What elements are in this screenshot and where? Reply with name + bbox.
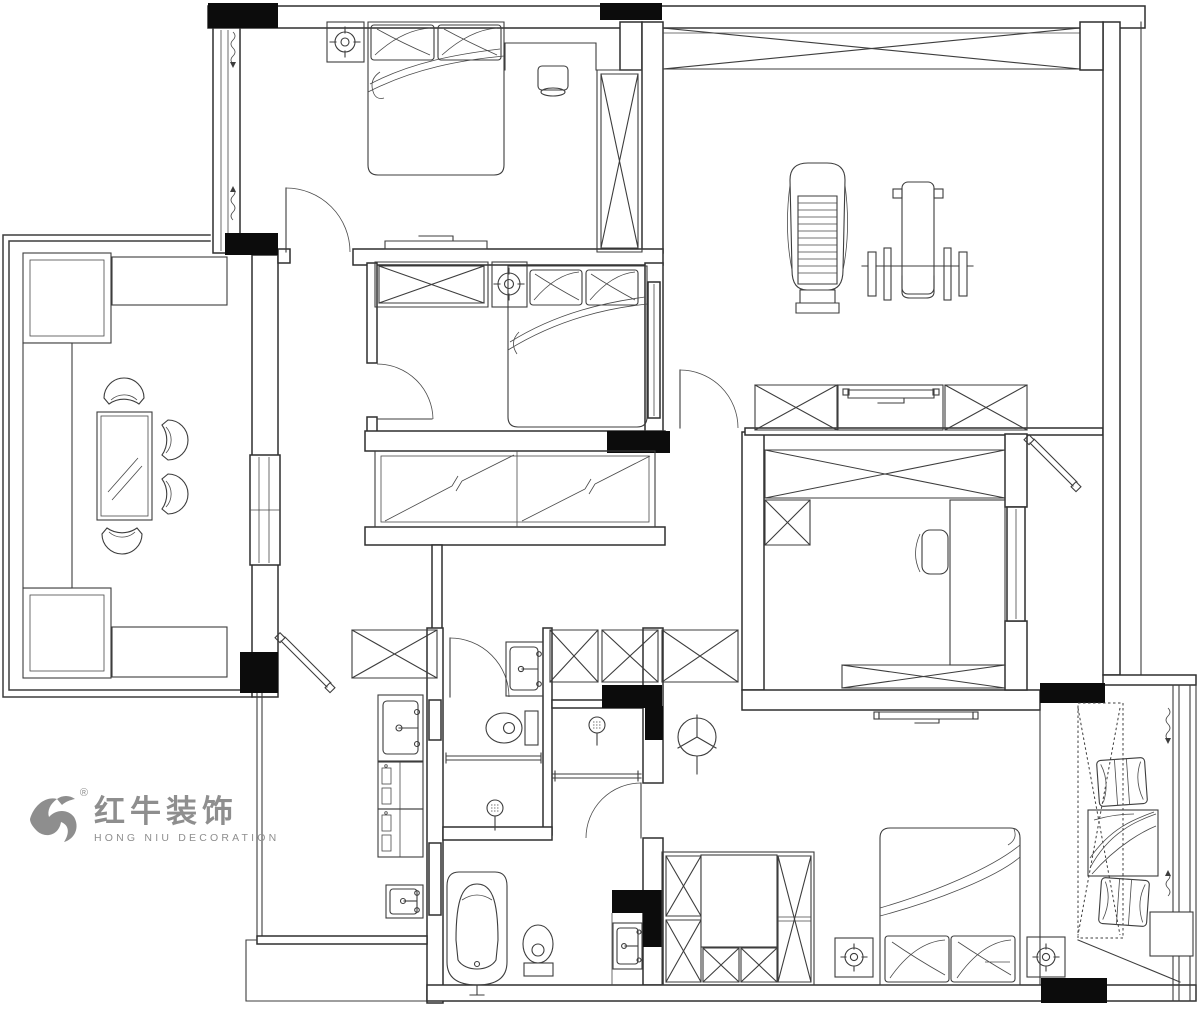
room-master-bedroom xyxy=(662,712,1065,985)
decor-pillow xyxy=(1096,757,1147,806)
curtain-squiggle-icon xyxy=(1165,708,1171,896)
double-bed xyxy=(508,266,647,427)
ceiling-fan-icon xyxy=(678,715,716,774)
coat-rod xyxy=(1024,435,1081,492)
weight-bench-machine xyxy=(862,182,973,300)
cabinet-x xyxy=(755,385,1027,430)
tv-console xyxy=(385,236,487,249)
room-gym xyxy=(663,22,1103,313)
ceiling-lamp xyxy=(492,262,527,307)
wardrobe-x-icon xyxy=(765,450,1005,688)
beam-cross-brace xyxy=(663,22,1103,70)
wash-basin-niche xyxy=(613,923,642,969)
room-dining-balcony xyxy=(23,253,227,678)
floor-drain-icon xyxy=(589,717,605,745)
planter-bottom xyxy=(23,588,111,678)
glass-dining-table xyxy=(97,412,152,520)
wardrobe-x-icon xyxy=(375,262,488,307)
glass-screen xyxy=(446,753,541,763)
bay-window-seat xyxy=(1078,703,1193,982)
kitchen-sink xyxy=(378,695,423,761)
tv-shelf xyxy=(838,385,943,430)
room-bathroom-1 xyxy=(446,638,543,830)
door-swing xyxy=(377,364,433,419)
wardrobe-dressing-unit xyxy=(662,852,814,985)
window-sill-box xyxy=(1150,912,1193,956)
treadmill xyxy=(787,163,847,313)
door-swing xyxy=(450,638,509,697)
door-swing xyxy=(586,783,641,838)
door-swing xyxy=(286,188,350,252)
nightstand-with-lamp xyxy=(835,937,1065,977)
room-bedroom-2 xyxy=(375,262,647,427)
dining-chairs xyxy=(102,378,188,554)
decor-pillow xyxy=(1098,877,1149,926)
room-shower xyxy=(552,717,641,838)
wall-tv xyxy=(874,712,978,723)
walk-in-closet xyxy=(375,451,655,527)
brand-name-cn: 红牛装饰 xyxy=(94,796,279,829)
cooktop-cabinets xyxy=(378,762,423,857)
floor-drain-icon xyxy=(487,800,503,830)
double-bed xyxy=(880,828,1020,985)
drying-rod xyxy=(275,633,335,693)
wardrobe-x-icon xyxy=(597,70,642,252)
toilet xyxy=(523,925,553,976)
registered-mark: ® xyxy=(80,787,88,799)
bathtub xyxy=(447,872,507,995)
room-bedroom-1 xyxy=(230,22,642,252)
bull-logo-icon: ® xyxy=(26,789,84,851)
toilet xyxy=(486,711,538,745)
wash-basin xyxy=(506,642,543,696)
double-bed xyxy=(368,22,504,175)
brand-logo: ® 红牛装饰 HONG NIU DECORATION xyxy=(26,780,256,860)
glass-screen xyxy=(552,771,641,781)
floor-plan-page: ® 红牛装饰 HONG NIU DECORATION xyxy=(0,0,1200,1009)
brand-name-en: HONG NIU DECORATION xyxy=(94,833,279,844)
prep-sink xyxy=(386,885,423,918)
door-swing xyxy=(680,370,738,428)
desk xyxy=(916,500,1006,665)
room-kitchen xyxy=(378,695,423,918)
planter-top xyxy=(23,253,111,343)
bedside-cabinet-with-table-lamp xyxy=(505,43,596,96)
